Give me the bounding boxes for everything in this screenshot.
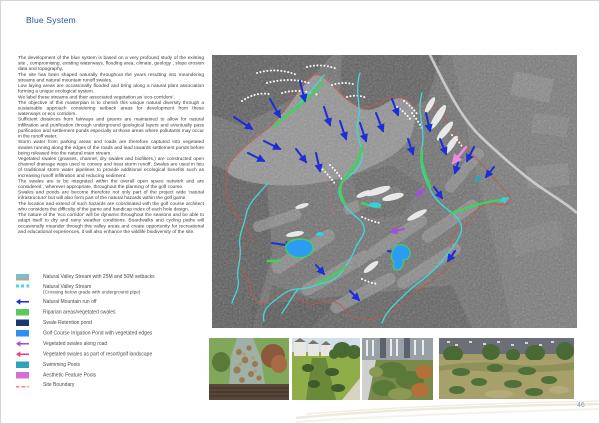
legend-item: Vegetated swales as part of resort/golf … (16, 351, 196, 358)
legend-item: Golf Course Irrigation Pond with vegetat… (16, 330, 196, 337)
legend-item: Natural Mountain run off (16, 299, 196, 306)
legend-item: Natural Valley Stream with 25M and 50M s… (16, 274, 196, 281)
document-page: Blue System The development of the blue … (0, 0, 600, 424)
legend-item: Riparian areas/vegetated swales (16, 309, 196, 316)
legend-item: Aesthetic Feature Pools (16, 372, 196, 379)
paragraph: The nature of the 'eco corridor' will be… (18, 212, 204, 234)
body-text: The development of the blue system is ba… (18, 55, 204, 235)
paragraph: The site has been shaped naturally throu… (18, 72, 204, 83)
stream-setback-swatch (16, 274, 29, 281)
paragraph: The swales are to be integrated within t… (18, 178, 204, 189)
page-title: Blue System (26, 15, 76, 25)
legend-item: Site Boundary (16, 383, 196, 388)
photo-rock-stream-boardwalk (209, 338, 289, 400)
footer-swoosh-decoration (296, 400, 600, 424)
swimming-pools-swatch (16, 362, 29, 369)
page-number: 46 (577, 402, 585, 409)
riparian-swatch (16, 309, 29, 316)
photo-residential-swale-garden (292, 338, 360, 400)
site-aerial-map (212, 55, 577, 328)
resort-swale-arrow-icon (16, 351, 29, 358)
paragraph: Low laying areas are occasionally floode… (18, 83, 204, 94)
legend-item: Swimming Pools (16, 362, 196, 369)
retention-pond-swatch (16, 320, 29, 327)
paragraph: Storm water from parking areas and roads… (18, 139, 204, 156)
site-boundary-swatch (16, 386, 29, 388)
paragraph: Vegetated swales (grasses, channel, dry … (18, 156, 204, 178)
paragraph: Sufficient distances from fairways and g… (18, 117, 204, 139)
irrigation-pond-swatch (16, 330, 29, 337)
road-swale-arrow-icon (16, 341, 29, 348)
paragraph: The location and extend of such hazards … (18, 201, 204, 212)
paragraph: The objective of this masterplan is to c… (18, 100, 204, 117)
map-legend: Natural Valley Stream with 25M and 50M s… (16, 274, 196, 392)
runoff-arrow-icon (16, 299, 29, 306)
paragraph: The development of the blue system is ba… (18, 55, 204, 72)
legend-item: Vegetated swales along road (16, 341, 196, 348)
feature-pools-swatch (16, 372, 29, 379)
paragraph: Swales and ponds are become therefore no… (18, 190, 204, 201)
photo-urban-bioswale (362, 338, 433, 400)
legend-item: Swale Retention pond (16, 320, 196, 327)
legend-item: Natural Valley Stream (Crossing below gr… (16, 285, 196, 295)
photo-meadow-swale-park (439, 338, 574, 399)
underground-stream-swatch (16, 285, 29, 288)
